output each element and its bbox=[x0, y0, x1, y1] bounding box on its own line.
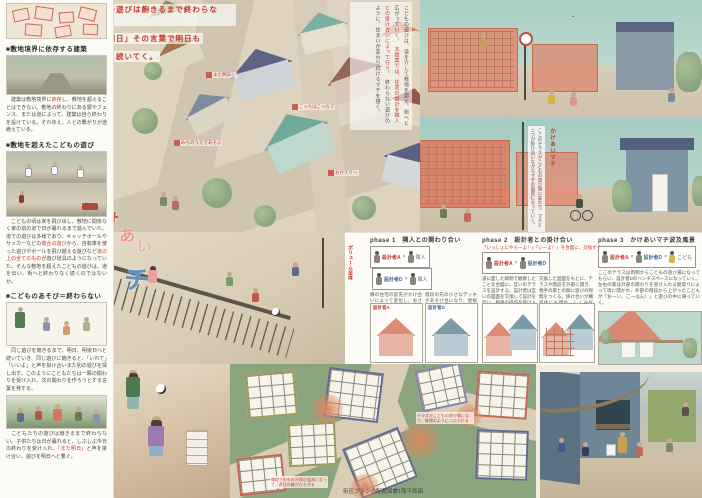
person-figure bbox=[480, 34, 487, 48]
street-photo bbox=[6, 55, 107, 95]
person-figure bbox=[570, 92, 577, 106]
alley-scene-illustration bbox=[540, 372, 702, 498]
bush bbox=[612, 180, 632, 212]
pergola-frame bbox=[430, 30, 514, 88]
phase-1-axon-frame: 設計者A bbox=[370, 303, 423, 363]
cyclist-figure bbox=[576, 194, 583, 208]
child-figure bbox=[292, 262, 299, 276]
red-building bbox=[516, 152, 578, 206]
title-char: チ bbox=[122, 259, 151, 298]
presentation-board: また明日！ こっちはこっちで みちのうえであそぶ おかえり〜 こどもの遊びは飽き… bbox=[0, 0, 702, 498]
volume-label: ボリューム全体 bbox=[347, 245, 354, 280]
block-plan-drawing: テラスがこどもの遊び場になり、縁側のようにつかわれる 道の上のものが遊び道具にな… bbox=[230, 364, 536, 498]
girl-figure bbox=[148, 416, 164, 456]
shopping-bag bbox=[606, 444, 616, 456]
added-pergola bbox=[546, 328, 574, 356]
laundry bbox=[621, 342, 636, 358]
red-pavilion bbox=[532, 44, 598, 92]
floor-plan-olive bbox=[287, 421, 337, 467]
roof bbox=[616, 22, 674, 32]
foliage bbox=[310, 394, 344, 424]
foliage bbox=[400, 422, 440, 458]
phase-3-heading: phase 3 かけあいマチ波及風景 bbox=[598, 235, 700, 244]
street-scene-middle-right-illustration bbox=[420, 118, 702, 232]
lit-window bbox=[648, 390, 696, 442]
children-play-photo bbox=[6, 151, 107, 184]
plan-note: テラスがこどもの遊び場になり、縁側のようにつかわれる bbox=[416, 412, 474, 424]
section-heading: ■こどものあそび＝終わらない bbox=[6, 290, 107, 300]
section-body: こどもの頃は家を飛び出し、敷地に関係なく家の前の道で日が暮れるまで遊んでいた。道… bbox=[6, 219, 107, 287]
marble-run-toy bbox=[186, 430, 208, 466]
phase-1-axon-frame: 設計者D bbox=[425, 303, 478, 363]
soccer-ball bbox=[156, 384, 166, 394]
floor-plan-olive bbox=[244, 370, 298, 419]
child-figure bbox=[666, 438, 673, 452]
bicycle-wheel bbox=[570, 210, 581, 221]
person-figure bbox=[440, 204, 447, 218]
hoop-pole bbox=[322, 238, 324, 308]
left-text-column: ■敷地境界に依存する建築 建築は敷地境界に依存し、敷地を超えることはできない。敷… bbox=[0, 0, 114, 498]
child-figure bbox=[582, 442, 589, 456]
street-scene-top-right-illustration: ⌄ ⌄ bbox=[420, 0, 702, 120]
phase-3-column: phase 3 かけあいマチ波及風景 設計者A×設計者D×こども ここのテラスは… bbox=[598, 235, 700, 311]
phase-2-quote: 「いっしょにやろーよ！」「いーよ！」を合図に、交換する。 bbox=[482, 245, 594, 251]
building bbox=[616, 30, 674, 90]
bush bbox=[692, 176, 702, 206]
person-figure bbox=[160, 192, 167, 206]
annotation-label: また明日！ bbox=[206, 72, 237, 78]
section-body: 同じ遊びを飽きるまで、明日、明後日へと続いていき、同じ遊びに飽きると、「いれて」… bbox=[6, 348, 107, 393]
child-figure bbox=[126, 370, 140, 409]
tree bbox=[132, 108, 158, 134]
plan-caption: 街区プランの配置図兼1階平面図 bbox=[230, 487, 536, 495]
phase-2-axon-frame bbox=[482, 303, 538, 363]
annotation-label: こっちはこっちで bbox=[292, 104, 335, 110]
tree bbox=[144, 62, 162, 80]
bus-stop-sign bbox=[519, 32, 533, 46]
person-figure bbox=[668, 88, 675, 102]
floor-plan-red bbox=[474, 370, 529, 420]
bicycle-wheel bbox=[582, 210, 593, 221]
utility-pole bbox=[522, 122, 524, 230]
children-playing-illustration bbox=[114, 364, 230, 498]
laundry bbox=[639, 342, 654, 358]
person-figure bbox=[464, 208, 471, 222]
section-body: 建築は敷地境界に依存し、敷地を超えることはできない。敷地の終わりにある塀やフェン… bbox=[6, 97, 107, 135]
phase-2-axon-frame bbox=[539, 303, 595, 363]
phase-3-text: ここのテラスは両側からこどもの遊び場になってもらい、設計者Dのベンチスペースにな… bbox=[598, 270, 700, 306]
section-heading: ■敷地境界に依存する建築 bbox=[6, 43, 107, 53]
title-char: い bbox=[136, 235, 154, 258]
person-figure bbox=[548, 90, 555, 104]
section-heading: ■敷地を超えたこどもの遊び bbox=[6, 139, 107, 149]
tree bbox=[676, 52, 702, 92]
mid-vertical-caption: ここのテラスがこどもの遊び場に変わり、マチとニワが掛け合いながらマチの風景になっ… bbox=[528, 126, 545, 232]
phase-3-view-frame bbox=[598, 311, 702, 365]
actor-box: 設計者A×隣人 bbox=[370, 246, 430, 268]
adult-figure bbox=[618, 432, 627, 453]
phase-1-heading: phase 1 隣人との関わり合い bbox=[370, 235, 478, 244]
white-door bbox=[652, 174, 668, 212]
tree bbox=[254, 205, 276, 227]
phase-2-heading: phase 2 設計者との掛け合い bbox=[482, 235, 594, 244]
section-body: こどもたちの遊びは飽きるまで終わらない。子供たちは日が暮れると、しぶしぶ今日の終… bbox=[6, 431, 107, 461]
annotation-label: おかえり〜 bbox=[328, 170, 359, 176]
plant bbox=[683, 338, 697, 358]
roof bbox=[620, 138, 694, 150]
child-figure bbox=[558, 438, 565, 452]
bus-stop-pole bbox=[524, 40, 526, 100]
bird-icon: ⌄ bbox=[570, 14, 576, 19]
phase-diagram-strip: ボリューム全体 phase 1 隣人との関わり合い 設計者A×隣人 設計者D×隣… bbox=[345, 232, 702, 365]
person-figure bbox=[172, 196, 179, 210]
children-crouching-illustration bbox=[6, 302, 107, 346]
soccer-ball bbox=[272, 308, 280, 316]
street-photo bbox=[6, 184, 107, 217]
person-at-window bbox=[682, 402, 689, 416]
actor-box: 設計者D×隣人 bbox=[372, 268, 432, 290]
child-figure bbox=[636, 442, 643, 456]
crowd-illustration bbox=[6, 395, 107, 429]
counter bbox=[596, 424, 630, 429]
annotation-label: みちのうえであそぶ bbox=[174, 140, 222, 146]
mid-vertical-title: かけあいマチ bbox=[548, 128, 556, 167]
actor-box: 設計者A×設計者D×こども bbox=[598, 246, 696, 268]
site-sketch-map bbox=[6, 3, 107, 39]
tree bbox=[202, 178, 232, 208]
pergola-frame bbox=[420, 144, 506, 204]
title-char: あ bbox=[118, 221, 136, 246]
child-figure bbox=[252, 288, 259, 302]
child-figure bbox=[226, 272, 233, 286]
actor-box: 設計者A×設計者D bbox=[482, 252, 550, 274]
concept-statement-vertical: こどもの遊びは、道を介して敷地を超え、街へと広がっていく。 本提案では、住宅の設… bbox=[350, 2, 412, 130]
floor-plan-navy bbox=[475, 429, 529, 481]
plant bbox=[601, 330, 611, 344]
tree bbox=[352, 196, 376, 220]
